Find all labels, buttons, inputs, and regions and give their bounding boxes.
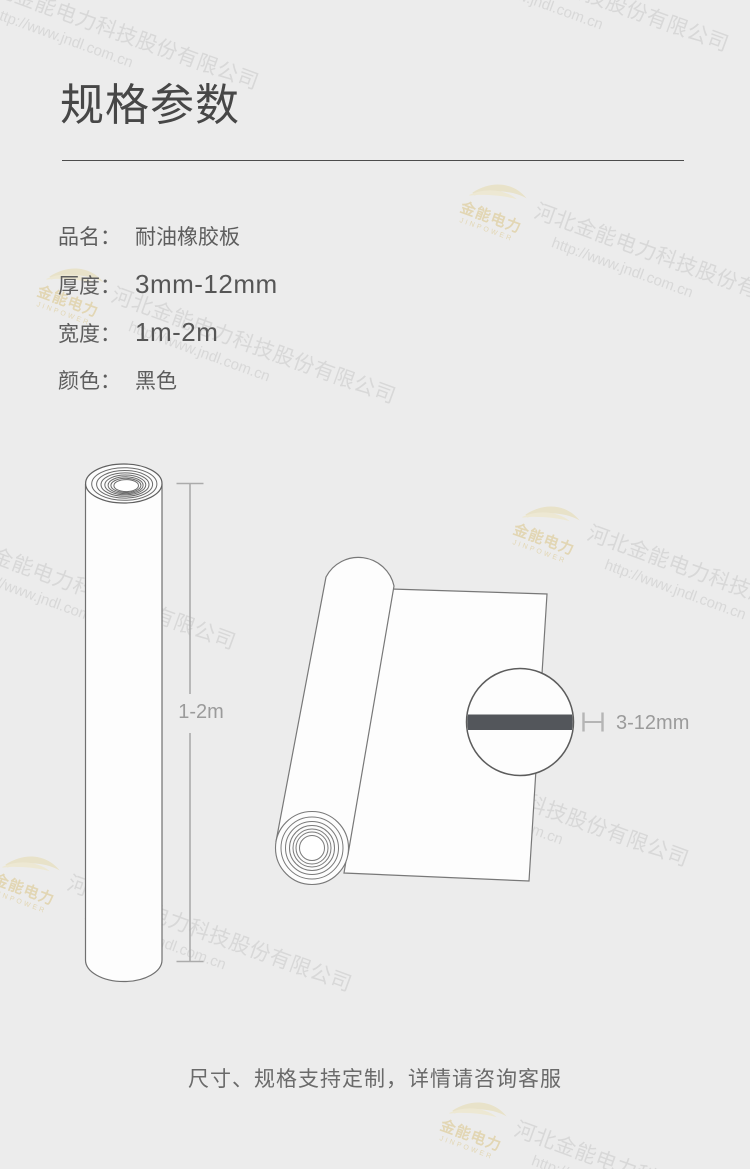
logo-subtext: JINPOWER [0, 888, 51, 916]
logo-subtext: JINPOWER [455, 216, 518, 244]
customization-note: 尺寸、规格支持定制，详情请咨询客服 [0, 1063, 750, 1093]
spec-value: 1m-2m [135, 317, 218, 348]
logo-text: 金能电力 [458, 196, 525, 238]
unrolled-sheet-drawing [276, 557, 548, 884]
jinpower-logo-icon: 金能电力 JINPOWER [508, 490, 588, 566]
watermark-company: 河北金能电力科技股份有限公司 [440, 0, 733, 58]
jinpower-logo-icon: 金能电力 JINPOWER [325, 715, 405, 791]
spec-page: 金能电力 JINPOWER 河北金能电力科技股份有限公司 http://www.… [0, 0, 750, 1169]
thickness-bar [464, 715, 576, 731]
spec-row-color: 颜色： 黑色 [58, 365, 278, 413]
watermark-company: 河北金能电力科技股份有限公司 [63, 867, 356, 998]
spec-row-width: 宽度： 1m-2m [58, 317, 278, 365]
spec-label: 厚度： [58, 270, 121, 300]
jinpower-logo-icon: 金能电力 JINPOWER [435, 1086, 515, 1162]
watermark-url: http://www.jndl.com.cn [0, 564, 230, 674]
watermark-company: 河北金能电力科技股份有限公司 [400, 742, 693, 873]
logo-swoosh-icon [521, 491, 585, 537]
watermark: 金能电力 JINPOWER 河北金能电力科技股份有限公司 http://www.… [508, 490, 750, 672]
logo-swoosh-icon [448, 1087, 512, 1133]
spec-label: 品名： [58, 221, 121, 251]
thickness-label: 3-12mm [616, 712, 689, 734]
thickness-lens [464, 669, 576, 776]
spec-value: 黑色 [135, 365, 177, 395]
spec-row-name: 品名： 耐油橡胶板 [58, 221, 278, 269]
logo-swoosh-icon [468, 169, 532, 215]
logo-swoosh-icon [1, 841, 65, 887]
spec-label: 颜色： [58, 365, 121, 395]
logo-text: 金能电力 [438, 1114, 505, 1156]
logo-subtext: JINPOWER [508, 538, 571, 566]
spec-value: 耐油橡胶板 [135, 221, 240, 251]
logo-text: 金能电力 [0, 868, 58, 910]
watermark-url: http://www.jndl.com.cn [459, 0, 722, 76]
watermark-url: http://www.jndl.com.cn [82, 906, 345, 1016]
watermark: 金能电力 JINPOWER 河北金能电力科技股份有限公司 http://www.… [0, 840, 358, 1022]
watermark-company: 河北金能电力科技股份有限公司 [583, 517, 750, 648]
spec-row-thickness: 厚度： 3mm-12mm [58, 269, 278, 317]
jinpower-logo-icon: 金能电力 JINPOWER [455, 168, 535, 244]
logo-subtext: JINPOWER [435, 1134, 498, 1162]
watermark-url: http://www.jndl.com.cn [549, 234, 750, 344]
jinpower-logo-icon: 金能电力 JINPOWER [0, 840, 68, 916]
product-illustration: 1-2m 3-12mm [0, 0, 750, 1169]
spec-list: 品名： 耐油橡胶板 厚度： 3mm-12mm 宽度： 1m-2m 颜色： 黑色 [58, 221, 278, 413]
watermark-url: http://www.jndl.com.cn [529, 1152, 750, 1169]
vertical-roll-drawing [86, 464, 163, 982]
watermark: 金能电力 JINPOWER 河北金能电力科技股份有限公司 http://www.… [455, 168, 750, 350]
watermark: 金能电力 JINPOWER 河北金能电力科技股份有限公司 http://www.… [435, 1086, 750, 1169]
watermark: 金能电力 JINPOWER 河北金能电力科技股份有限公司 http://www.… [325, 715, 694, 897]
spec-value: 3mm-12mm [135, 269, 278, 300]
spec-label: 宽度： [58, 318, 121, 348]
logo-text: 金能电力 [511, 518, 578, 560]
logo-text: 金能电力 [328, 743, 395, 785]
watermark-url: http://www.jndl.com.cn [602, 556, 750, 666]
logo-swoosh-icon [338, 716, 402, 762]
title-divider [62, 160, 684, 161]
watermark-company: 河北金能电力科技股份有限公司 [510, 1113, 750, 1169]
length-dimension [177, 484, 204, 962]
watermark-company: 河北金能电力科技股份有限公司 [530, 195, 750, 326]
watermark: 金能电力 JINPOWER 河北金能电力科技股份有限公司 http://www.… [365, 0, 734, 82]
thickness-dimension [584, 713, 603, 732]
watermark: 金能电力 JINPOWER 河北金能电力科技股份有限公司 http://www.… [0, 498, 242, 680]
page-title: 规格参数 [60, 80, 240, 133]
watermark-url: http://www.jndl.com.cn [419, 781, 682, 891]
logo-subtext: JINPOWER [325, 763, 388, 791]
length-label: 1-2m [178, 701, 224, 723]
watermark-company: 河北金能电力科技股份有限公司 [0, 525, 241, 656]
